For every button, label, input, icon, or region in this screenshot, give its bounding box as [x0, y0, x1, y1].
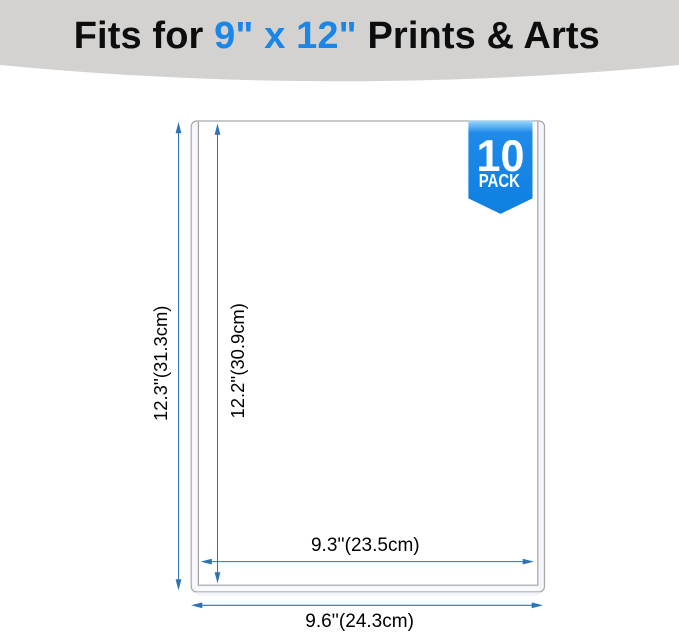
svg-text:9.3''(23.5cm): 9.3''(23.5cm)	[311, 535, 420, 556]
svg-text:12.3''(31.3cm): 12.3''(31.3cm)	[150, 306, 171, 421]
svg-text:Fits for 9" x 12" Prints & Art: Fits for 9" x 12" Prints & Arts	[74, 15, 600, 57]
svg-text:9.6''(24.3cm): 9.6''(24.3cm)	[305, 611, 414, 632]
svg-text:PACK: PACK	[479, 170, 521, 191]
svg-text:12.2''(30.9cm): 12.2''(30.9cm)	[227, 303, 248, 418]
